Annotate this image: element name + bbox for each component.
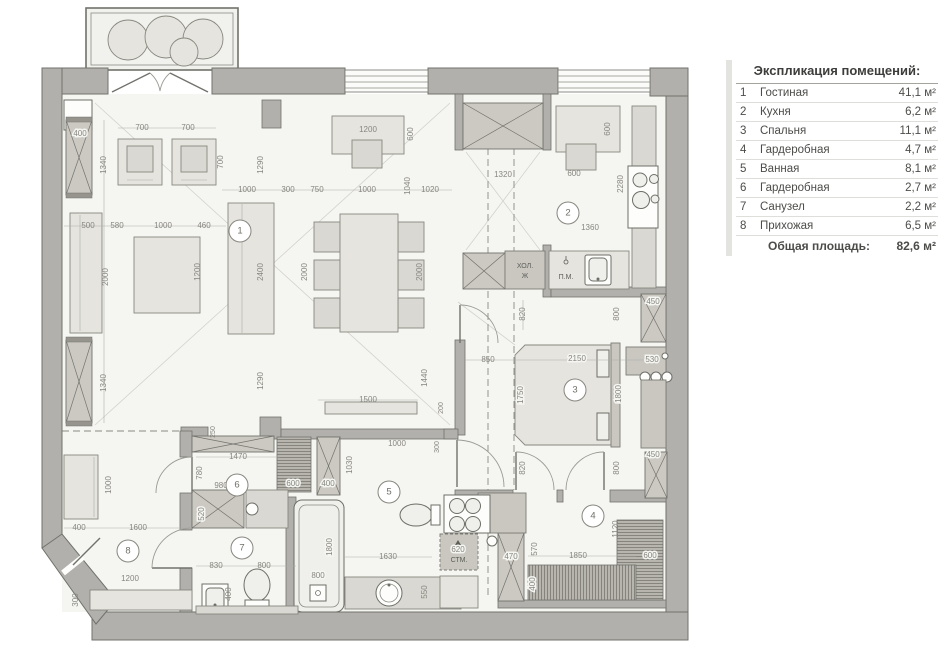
wc-counter — [196, 606, 298, 614]
dim-label: 2280 — [616, 175, 625, 193]
dim-label: 850 — [481, 355, 495, 364]
dining-table — [340, 214, 398, 332]
legend-row-number: 3 — [736, 122, 760, 141]
dim-label: 800 — [612, 461, 621, 475]
dim-label: 1320 — [494, 170, 512, 179]
dim-label: 1600 — [129, 523, 147, 532]
dim-label: 700 — [216, 155, 225, 169]
room-marker-bath: 5 — [378, 481, 400, 503]
legend-row-area: 41,1 м² — [878, 84, 938, 103]
room-marker-kitchen: 2 — [557, 202, 579, 224]
dim-label: 1000 — [358, 185, 376, 194]
toilet — [244, 569, 270, 607]
dim-label: 1020 — [421, 185, 439, 194]
toilet — [400, 504, 440, 526]
legend-row-name: Прихожая — [760, 217, 878, 236]
armchair — [172, 139, 216, 185]
decor-circle — [662, 353, 668, 359]
dim-label: 800 — [257, 561, 271, 570]
legend-table: Экспликация помещений: 1Гостиная41,1 м² … — [736, 60, 938, 256]
room-marker-wardrobe-6: 6 — [226, 474, 248, 496]
legend-row: 5Ванная8,1 м² — [736, 160, 938, 179]
dim-label: 530 — [645, 355, 659, 364]
dim-label: 1040 — [403, 177, 412, 195]
balcony-round-table — [170, 38, 198, 66]
dim-label: 1200 — [359, 125, 377, 134]
fridge-label: ХОЛ. — [517, 263, 533, 270]
dim-label: 620 — [451, 545, 465, 554]
dim-label: 1500 — [359, 395, 377, 404]
dim-label: 1290 — [256, 156, 265, 174]
dim-label: 1750 — [516, 386, 525, 404]
room-legend: Экспликация помещений: 1Гостиная41,1 м² … — [726, 60, 938, 256]
coffee-table — [134, 237, 200, 313]
legend-row: 4Гардеробная4,7 м² — [736, 141, 938, 160]
dishwasher-label: П.М. — [559, 274, 574, 281]
legend-row-name: Кухня — [760, 103, 878, 122]
dining-table-set — [314, 214, 424, 332]
stove — [628, 166, 659, 228]
dim-label: 570 — [530, 542, 539, 556]
armchair — [118, 139, 162, 185]
washer-label: СТМ. — [451, 557, 468, 564]
legend-row: 3Спальня11,1 м² — [736, 122, 938, 141]
legend-row-area: 2,2 м² — [878, 198, 938, 217]
dim-label: 300 — [434, 441, 441, 453]
dim-label: 300 — [71, 593, 80, 607]
dim-label: 1290 — [256, 372, 265, 390]
legend-row-area: 11,1 м² — [878, 122, 938, 141]
dim-label: 780 — [195, 466, 204, 480]
legend-row-area: 8,1 м² — [878, 160, 938, 179]
hall-bench — [90, 590, 192, 610]
vent-shaft-box — [463, 253, 505, 289]
vanity-basin — [246, 503, 258, 515]
room-marker-wardrobe-4: 4 — [582, 505, 604, 527]
dim-label: 550 — [420, 585, 429, 599]
dim-label: 500 — [81, 221, 95, 230]
dim-label: 1800 — [325, 538, 334, 556]
room-marker-hall: 8 — [117, 540, 139, 562]
legend-row-name: Санузел — [760, 198, 878, 217]
legend-total-label: Общая площадь: — [760, 236, 878, 257]
dim-label: 1440 — [420, 369, 429, 387]
round-sink — [376, 580, 402, 606]
pillow — [597, 413, 609, 440]
legend-accent-bar — [726, 60, 732, 256]
dim-label: 400 — [528, 577, 537, 591]
dim-label: 820 — [518, 461, 527, 475]
legend-row: 2Кухня6,2 м² — [736, 103, 938, 122]
legend-row: 8Прихожая6,5 м² — [736, 217, 938, 236]
svg-text:8: 8 — [125, 546, 130, 557]
dim-label: 1000 — [154, 221, 172, 230]
legend-row: 7Санузел2,2 м² — [736, 198, 938, 217]
dim-label: 450 — [646, 450, 660, 459]
dim-label: 800 — [311, 571, 325, 580]
dim-label: 1200 — [193, 263, 202, 281]
legend-row-area: 2,7 м² — [878, 179, 938, 198]
legend-row-number: 1 — [736, 84, 760, 103]
living-window — [345, 70, 428, 92]
legend-row-name: Гардеробная — [760, 179, 878, 198]
room-marker-bedroom: 3 — [564, 379, 586, 401]
dim-label: 2000 — [300, 263, 309, 281]
dim-label: 400 — [72, 523, 86, 532]
svg-text:7: 7 — [239, 543, 244, 554]
legend-row-name: Гостиная — [760, 84, 878, 103]
dim-label: 800 — [612, 307, 621, 321]
balcony-round-chair — [108, 20, 148, 60]
dim-label: 580 — [110, 221, 124, 230]
svg-text:2: 2 — [565, 208, 570, 219]
kitchen-sink — [585, 255, 611, 285]
dim-label: 820 — [518, 307, 527, 321]
dim-label: 1800 — [614, 385, 623, 403]
dim-label: 600 — [406, 127, 415, 141]
legend-row-number: 8 — [736, 217, 760, 236]
dim-label: 1360 — [581, 223, 599, 232]
kitchen-window — [558, 70, 650, 92]
dim-label: 200 — [438, 402, 445, 414]
dim-label: 1120 — [611, 520, 620, 538]
dim-label: 2000 — [415, 263, 424, 281]
dim-label: 700 — [181, 123, 195, 132]
balcony — [86, 8, 238, 70]
bathtub — [294, 500, 344, 612]
dim-label: 1000 — [388, 439, 406, 448]
room-marker-living: 1 — [229, 220, 251, 242]
legend-row-name: Спальня — [760, 122, 878, 141]
legend-row-number: 2 — [736, 103, 760, 122]
dim-label: 450 — [646, 297, 660, 306]
pillow — [597, 350, 609, 377]
dim-label: 1630 — [379, 552, 397, 561]
dim-label: 1340 — [99, 156, 108, 174]
dining-chair — [314, 298, 340, 328]
legend-row-number: 7 — [736, 198, 760, 217]
legend-row-name: Гардеробная — [760, 141, 878, 160]
dim-label: 520 — [197, 507, 206, 521]
dim-label: 700 — [135, 123, 149, 132]
dim-label: 250 — [210, 426, 217, 438]
legend-row-number: 4 — [736, 141, 760, 160]
wardrobe-box — [498, 533, 524, 601]
legend-title: Экспликация помещений: — [736, 60, 938, 84]
fridge-label: Ж — [522, 273, 529, 280]
wardrobe-box — [66, 337, 92, 426]
legend-row: 1Гостиная41,1 м² — [736, 84, 938, 103]
dim-label: 2150 — [568, 354, 586, 363]
dim-label: 750 — [310, 185, 324, 194]
dim-label: 1030 — [345, 456, 354, 474]
dim-label: 470 — [504, 552, 518, 561]
legend-row-number: 6 — [736, 179, 760, 198]
svg-text:4: 4 — [590, 511, 595, 522]
dim-label: 300 — [281, 185, 295, 194]
dim-label: 2000 — [101, 268, 110, 286]
fridge — [505, 251, 545, 289]
hall-closet — [64, 455, 98, 519]
svg-text:3: 3 — [572, 385, 577, 396]
legend-total-value: 82,6 м² — [878, 236, 938, 257]
dining-chair — [398, 222, 424, 252]
dim-label: 600 — [603, 122, 612, 136]
floor-plan-page: 700 700 400 1340 700 1290 1000 300 750 1… — [0, 0, 940, 659]
dining-chair — [314, 222, 340, 252]
dim-label: 1340 — [99, 374, 108, 392]
svg-text:5: 5 — [386, 487, 391, 498]
legend-total-row: Общая площадь:82,6 м² — [736, 236, 938, 257]
wardrobe-box — [192, 436, 274, 452]
dim-label: 1200 — [121, 574, 139, 583]
legend-row-number: 5 — [736, 160, 760, 179]
room-marker-wc: 7 — [231, 537, 253, 559]
dim-label: 600 — [567, 169, 581, 178]
legend-row: 6Гардеробная2,7 м² — [736, 179, 938, 198]
dim-label: 400 — [321, 479, 335, 488]
dim-label: 1000 — [104, 476, 113, 494]
sofa — [70, 213, 102, 333]
dim-label: 1000 — [238, 185, 256, 194]
bedroom-cabinet — [641, 380, 666, 448]
dim-label: 600 — [643, 551, 657, 560]
dining-chair — [398, 298, 424, 328]
dim-label: 400 — [73, 129, 87, 138]
dim-label: 460 — [197, 221, 211, 230]
balcony-french-doors — [112, 73, 208, 92]
dim-label: 400 — [224, 587, 233, 601]
dim-label: 830 — [209, 561, 223, 570]
svg-text:1: 1 — [237, 226, 242, 237]
legend-row-area: 6,2 м² — [878, 103, 938, 122]
dim-label: 600 — [286, 479, 300, 488]
legend-row-name: Ванная — [760, 160, 878, 179]
svg-text:6: 6 — [234, 480, 239, 491]
wardrobe-hatch — [528, 565, 636, 600]
legend-row-area: 4,7 м² — [878, 141, 938, 160]
dim-label: 1470 — [229, 452, 247, 461]
legend-row-area: 6,5 м² — [878, 217, 938, 236]
dim-label: 1850 — [569, 551, 587, 560]
dim-label: 2400 — [256, 263, 265, 281]
dining-chair — [314, 260, 340, 290]
vent-shaft-box — [463, 103, 543, 149]
